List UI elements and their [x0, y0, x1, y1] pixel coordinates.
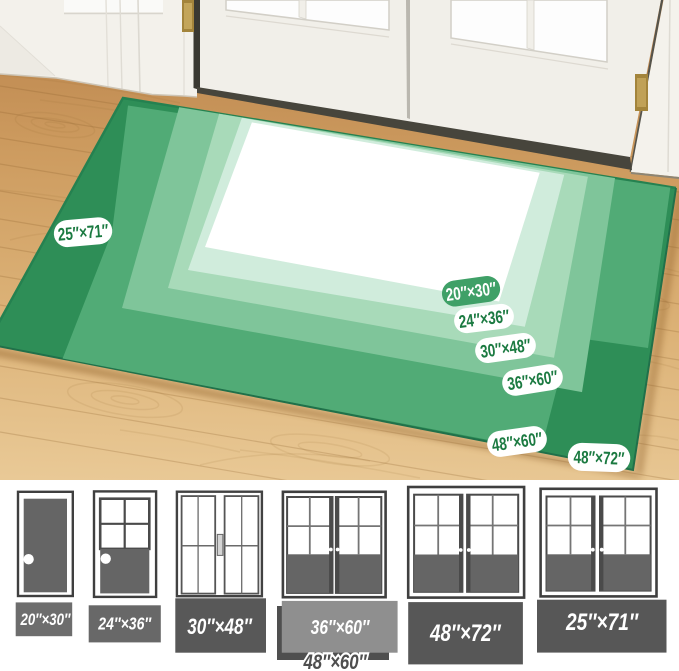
svg-text:48″×72″: 48″×72″ [573, 448, 625, 469]
svg-text:36″×60″: 36″×60″ [311, 616, 371, 638]
svg-text:20″×30″: 20″×30″ [20, 611, 71, 630]
svg-text:30″×48″: 30″×48″ [187, 615, 253, 640]
svg-text:25″×71″: 25″×71″ [565, 608, 639, 636]
svg-text:48″×60″: 48″×60″ [303, 651, 368, 671]
svg-text:48″×72″: 48″×72″ [429, 620, 502, 647]
svg-text:24″×36″: 24″×36″ [97, 614, 152, 634]
